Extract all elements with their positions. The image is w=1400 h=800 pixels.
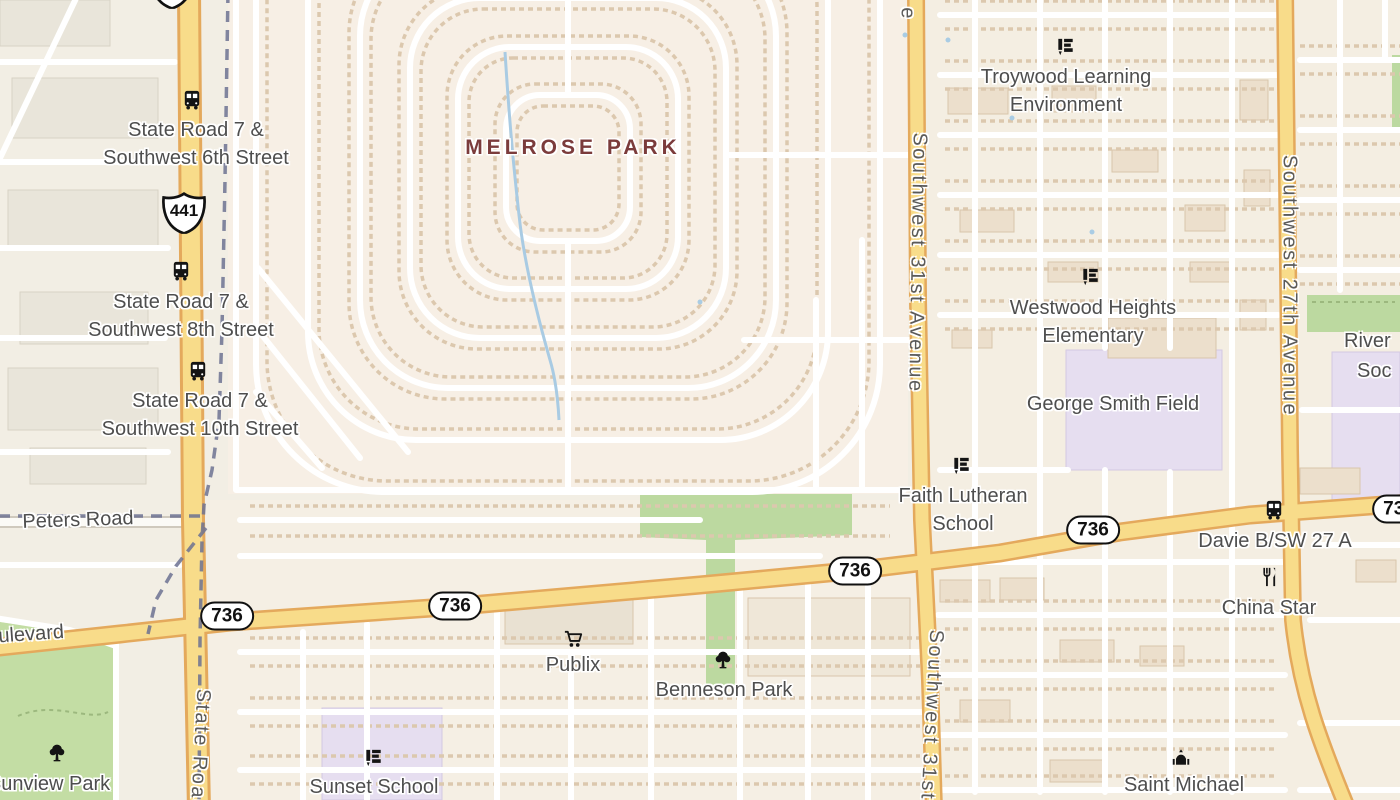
map-tiles bbox=[0, 0, 1400, 800]
map-canvas[interactable]: 441441736736736736736 MELROSE PARK State… bbox=[0, 0, 1400, 800]
